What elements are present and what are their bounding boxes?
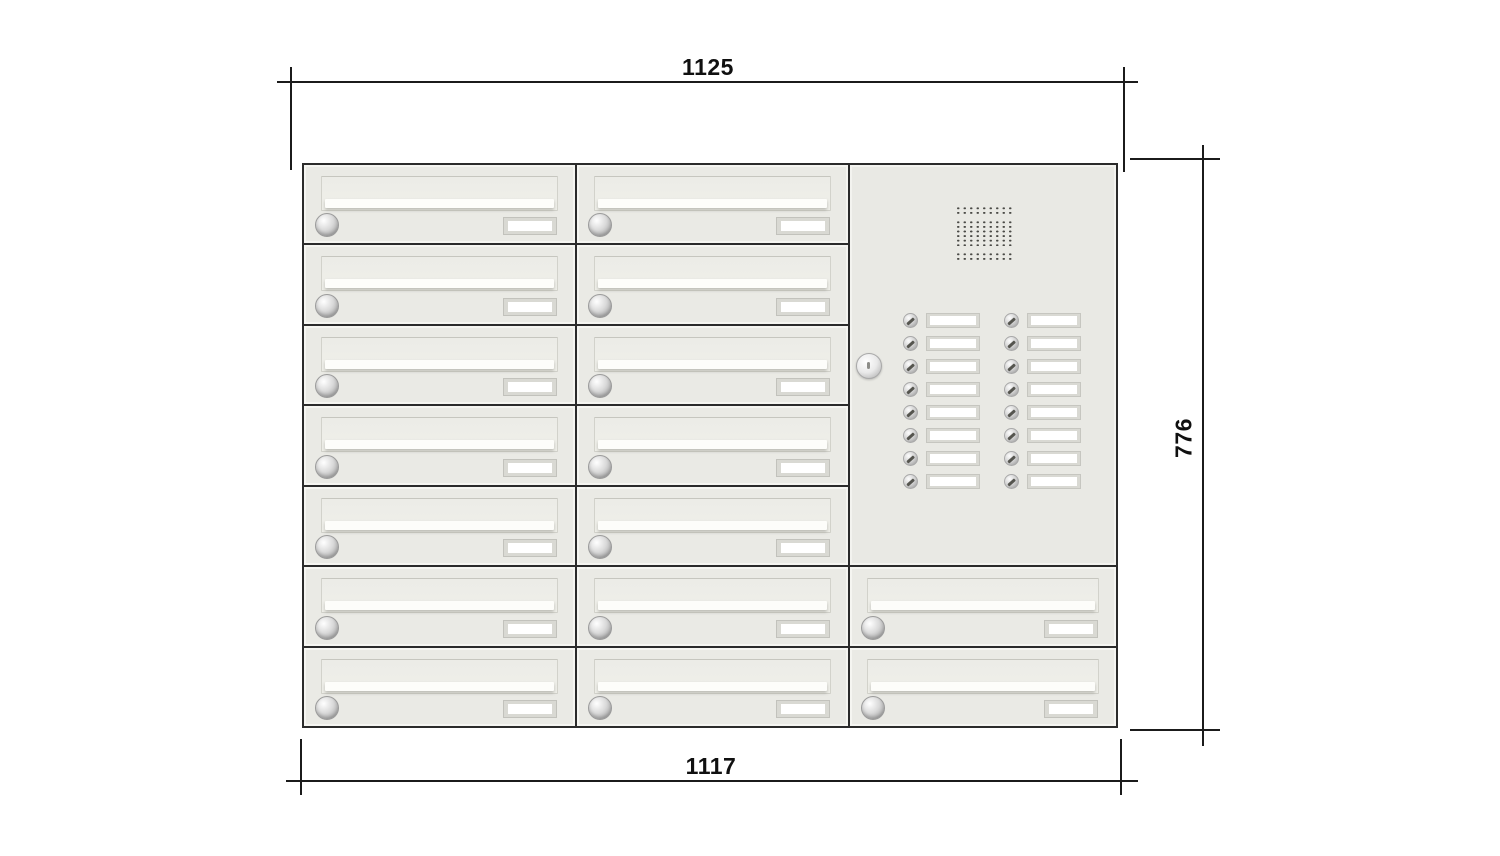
dimension-label-right-height: 776	[1171, 418, 1198, 458]
name-plate-blank	[930, 362, 976, 371]
mailbox-lock-icon	[588, 374, 612, 398]
mailbox-compartment	[304, 648, 575, 726]
dimension-extension-top-right	[1123, 67, 1125, 172]
name-plate-blank	[781, 302, 825, 312]
mailbox-lock-icon	[315, 535, 339, 559]
mailbox-compartment	[577, 406, 848, 484]
dimension-line-top	[277, 81, 1138, 83]
mail-slot	[598, 199, 827, 208]
bell-button-icon	[1004, 359, 1019, 374]
mailbox-name-plate	[776, 620, 830, 638]
name-plate-blank	[1031, 362, 1077, 371]
bell-row	[903, 474, 1081, 489]
bell-unit	[1004, 359, 1081, 374]
mailbox-lock-icon	[861, 696, 885, 720]
mail-slot-flap	[321, 578, 558, 613]
mail-slot	[871, 601, 1095, 610]
bell-row	[903, 451, 1081, 466]
speaker-grille-icon	[954, 205, 1012, 260]
bell-name-plate	[1027, 474, 1081, 489]
mailbox-name-plate	[1044, 620, 1098, 638]
mailbox-name-plate	[503, 539, 557, 557]
mailbox-name-plate	[776, 378, 830, 396]
mailbox-compartment	[577, 326, 848, 404]
mailbox-compartment	[304, 326, 575, 404]
mail-slot	[598, 682, 827, 691]
mail-slot-flap	[594, 417, 831, 452]
mail-slot-flap	[594, 659, 831, 694]
name-plate-blank	[1031, 408, 1077, 417]
mail-slot-flap	[867, 659, 1099, 694]
speaker-grille-band	[954, 219, 1012, 246]
bell-name-plate	[1027, 428, 1081, 443]
mailbox-name-plate	[503, 700, 557, 718]
mail-slot-flap	[321, 417, 558, 452]
name-plate-blank	[1049, 624, 1093, 634]
bell-unit	[903, 405, 980, 420]
name-plate-blank	[930, 454, 976, 463]
name-plate-blank	[781, 221, 825, 231]
mailbox-name-plate	[1044, 700, 1098, 718]
mailbox-compartment	[577, 165, 848, 243]
mail-slot	[325, 279, 554, 288]
dimension-label-top-width: 1125	[682, 54, 734, 81]
mailbox-lock-icon	[861, 616, 885, 640]
bell-button-icon	[903, 405, 918, 420]
mailbox-name-plate	[503, 298, 557, 316]
bell-name-plate	[1027, 405, 1081, 420]
mail-slot	[598, 279, 827, 288]
bell-row	[903, 382, 1081, 397]
bell-name-plate	[926, 382, 980, 397]
mail-slot-flap	[594, 498, 831, 533]
panel-lock-icon	[856, 353, 882, 379]
mail-slot	[871, 682, 1095, 691]
mailbox-name-plate	[776, 298, 830, 316]
dimension-extension-right-bottom	[1130, 729, 1220, 731]
mail-slot	[598, 521, 827, 530]
bell-button-icon	[1004, 382, 1019, 397]
name-plate-blank	[930, 431, 976, 440]
mail-slot-flap	[321, 337, 558, 372]
name-plate-blank	[508, 543, 552, 553]
bell-unit	[1004, 336, 1081, 351]
mailbox-lock-icon	[315, 294, 339, 318]
bell-row	[903, 359, 1081, 374]
name-plate-blank	[508, 624, 552, 634]
mailbox-name-plate	[503, 459, 557, 477]
name-plate-blank	[508, 704, 552, 714]
speaker-grille-band	[954, 251, 1012, 260]
bell-unit	[1004, 313, 1081, 328]
bell-name-plate	[926, 405, 980, 420]
name-plate-blank	[1031, 477, 1077, 486]
mail-slot	[598, 601, 827, 610]
mailbox-compartment	[577, 567, 848, 645]
name-plate-blank	[1031, 339, 1077, 348]
mail-slot-flap	[594, 337, 831, 372]
intercom-panel	[850, 165, 1116, 565]
bell-unit	[903, 359, 980, 374]
bell-name-plate	[926, 428, 980, 443]
name-plate-blank	[508, 382, 552, 392]
name-plate-blank	[508, 302, 552, 312]
bell-row	[903, 428, 1081, 443]
name-plate-blank	[1031, 431, 1077, 440]
speaker-grille-band	[954, 205, 1012, 214]
name-plate-blank	[508, 221, 552, 231]
mailbox-name-plate	[503, 378, 557, 396]
bell-name-plate	[926, 474, 980, 489]
mailbox-lock-icon	[588, 616, 612, 640]
mailbox-cabinet	[302, 163, 1118, 728]
mailbox-lock-icon	[588, 696, 612, 720]
bell-button-icon	[1004, 313, 1019, 328]
mail-slot	[598, 360, 827, 369]
name-plate-blank	[930, 339, 976, 348]
mail-slot-flap	[594, 578, 831, 613]
mailbox-lock-icon	[315, 455, 339, 479]
bell-name-plate	[1027, 451, 1081, 466]
mail-slot-flap	[321, 498, 558, 533]
dimension-extension-right-top	[1130, 158, 1220, 160]
bell-button-icon	[903, 336, 918, 351]
bell-button-icon	[903, 313, 918, 328]
bell-row	[903, 313, 1081, 328]
bell-unit	[1004, 451, 1081, 466]
name-plate-blank	[930, 316, 976, 325]
bell-button-icon	[903, 382, 918, 397]
mailbox-name-plate	[776, 459, 830, 477]
bell-name-plate	[1027, 359, 1081, 374]
mailbox-compartment	[850, 567, 1116, 645]
bell-unit	[903, 428, 980, 443]
bell-button-icon	[903, 428, 918, 443]
bell-unit	[903, 336, 980, 351]
mailbox-lock-icon	[315, 616, 339, 640]
mail-slot-flap	[867, 578, 1099, 613]
mailbox-lock-icon	[315, 213, 339, 237]
mailbox-name-plate	[776, 217, 830, 235]
mailbox-compartment	[577, 245, 848, 323]
bell-button-array	[903, 313, 1081, 497]
name-plate-blank	[781, 463, 825, 473]
bell-unit	[903, 313, 980, 328]
bell-unit	[1004, 405, 1081, 420]
dimension-label-bottom-width: 1117	[686, 753, 737, 780]
mail-slot-flap	[321, 176, 558, 211]
bell-unit	[1004, 382, 1081, 397]
mailbox-compartment	[850, 648, 1116, 726]
bell-name-plate	[1027, 313, 1081, 328]
bell-name-plate	[926, 359, 980, 374]
bell-name-plate	[1027, 336, 1081, 351]
dimension-extension-top-left	[290, 67, 292, 170]
mail-slot-flap	[321, 256, 558, 291]
dimension-line-bottom	[286, 780, 1138, 782]
mailbox-name-plate	[503, 217, 557, 235]
mailbox-lock-icon	[588, 294, 612, 318]
bell-name-plate	[1027, 382, 1081, 397]
mailbox-name-plate	[503, 620, 557, 638]
mailbox-compartment	[304, 245, 575, 323]
dimension-extension-bottom-left	[300, 739, 302, 795]
name-plate-blank	[508, 463, 552, 473]
name-plate-blank	[781, 382, 825, 392]
mailbox-lock-icon	[588, 455, 612, 479]
bell-button-icon	[1004, 474, 1019, 489]
bell-unit	[1004, 474, 1081, 489]
mail-slot	[325, 440, 554, 449]
mail-slot	[325, 199, 554, 208]
mailbox-name-plate	[776, 539, 830, 557]
bell-button-icon	[1004, 336, 1019, 351]
technical-drawing: 1125 1117 776	[0, 0, 1500, 856]
mailbox-compartment	[304, 567, 575, 645]
mailbox-lock-icon	[588, 213, 612, 237]
name-plate-blank	[781, 704, 825, 714]
dimension-line-right	[1202, 145, 1204, 746]
name-plate-blank	[781, 624, 825, 634]
mailbox-lock-icon	[315, 374, 339, 398]
name-plate-blank	[930, 408, 976, 417]
bell-name-plate	[926, 451, 980, 466]
mailbox-lock-icon	[588, 535, 612, 559]
mailbox-compartment	[304, 406, 575, 484]
bell-button-icon	[903, 474, 918, 489]
name-plate-blank	[1049, 704, 1093, 714]
name-plate-blank	[1031, 385, 1077, 394]
bell-row	[903, 405, 1081, 420]
bell-unit	[903, 382, 980, 397]
bell-name-plate	[926, 336, 980, 351]
bell-button-icon	[1004, 405, 1019, 420]
bell-name-plate	[926, 313, 980, 328]
mail-slot	[325, 360, 554, 369]
bell-row	[903, 336, 1081, 351]
mail-slot-flap	[321, 659, 558, 694]
bell-button-icon	[1004, 451, 1019, 466]
name-plate-blank	[930, 385, 976, 394]
mail-slot	[325, 682, 554, 691]
mailbox-compartment	[577, 648, 848, 726]
mail-slot	[325, 601, 554, 610]
bell-button-icon	[903, 451, 918, 466]
mailbox-name-plate	[776, 700, 830, 718]
name-plate-blank	[1031, 316, 1077, 325]
mail-slot-flap	[594, 256, 831, 291]
mail-slot-flap	[594, 176, 831, 211]
mailbox-lock-icon	[315, 696, 339, 720]
mailbox-compartment	[577, 487, 848, 565]
name-plate-blank	[1031, 454, 1077, 463]
bell-unit	[1004, 428, 1081, 443]
bell-button-icon	[1004, 428, 1019, 443]
mail-slot	[325, 521, 554, 530]
mail-slot	[598, 440, 827, 449]
name-plate-blank	[930, 477, 976, 486]
dimension-extension-bottom-right	[1120, 739, 1122, 795]
bell-unit	[903, 451, 980, 466]
mailbox-compartment	[304, 165, 575, 243]
bell-button-icon	[903, 359, 918, 374]
mailbox-compartment	[304, 487, 575, 565]
name-plate-blank	[781, 543, 825, 553]
bell-unit	[903, 474, 980, 489]
